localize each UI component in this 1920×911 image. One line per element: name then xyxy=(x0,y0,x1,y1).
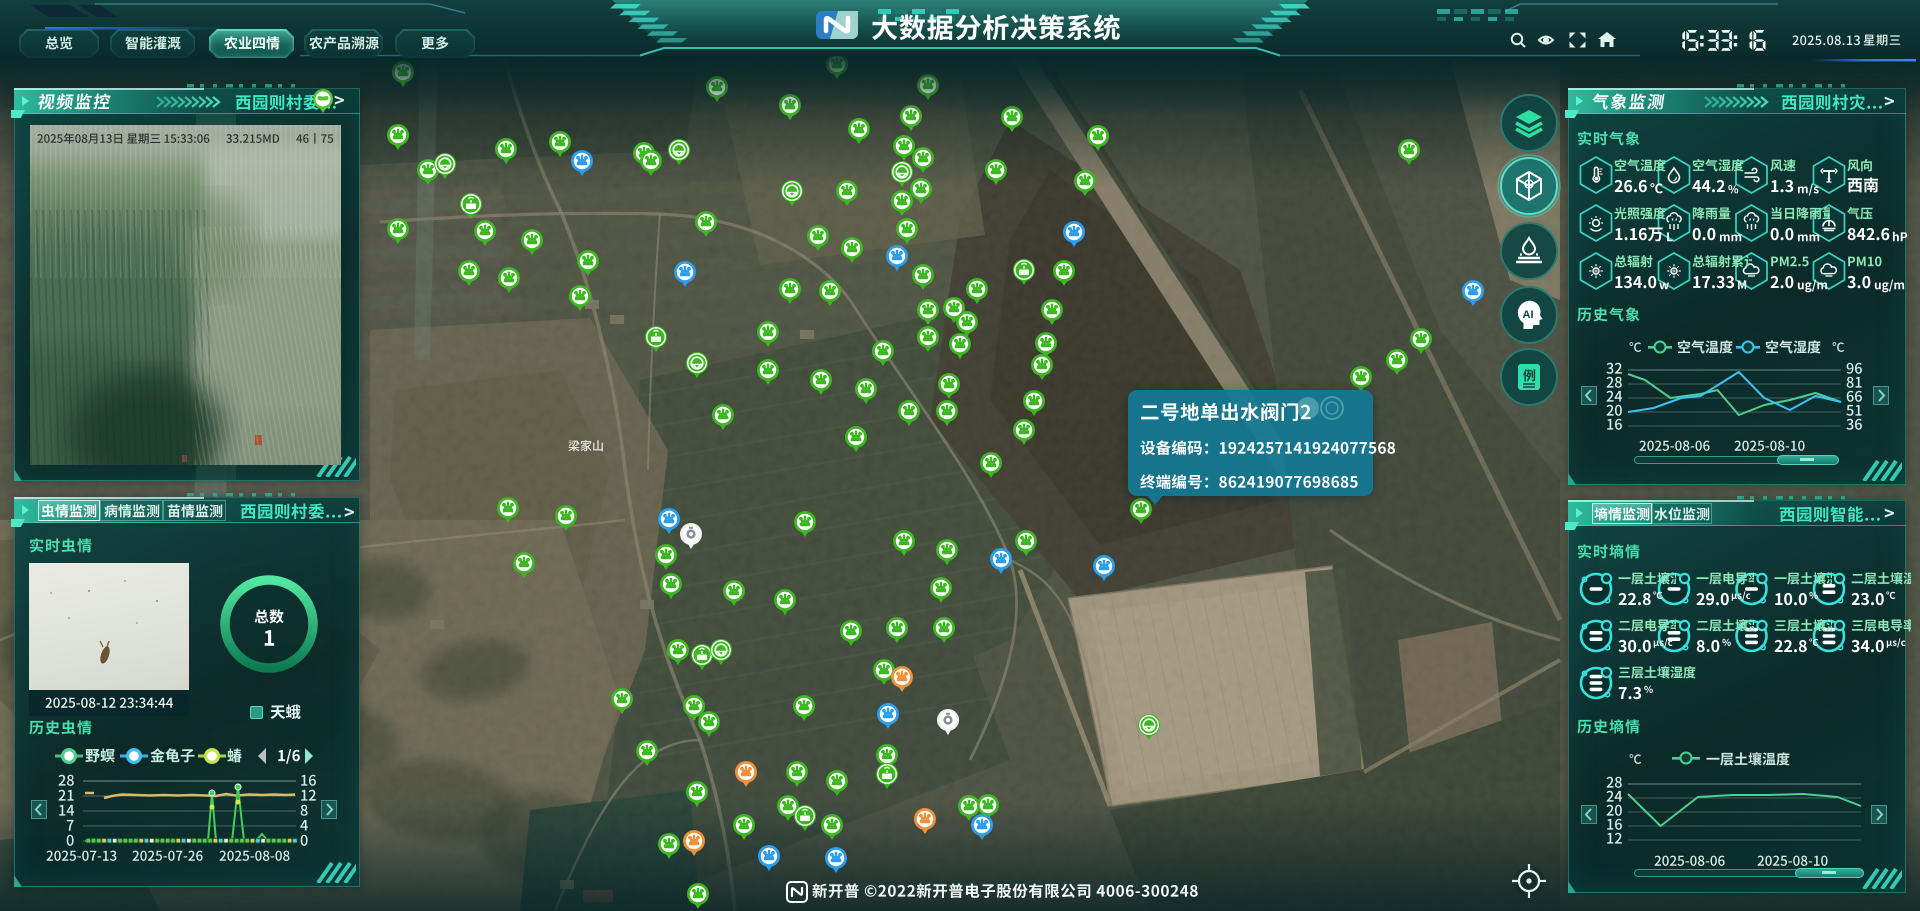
svg-text:AI: AI xyxy=(1523,309,1534,321)
